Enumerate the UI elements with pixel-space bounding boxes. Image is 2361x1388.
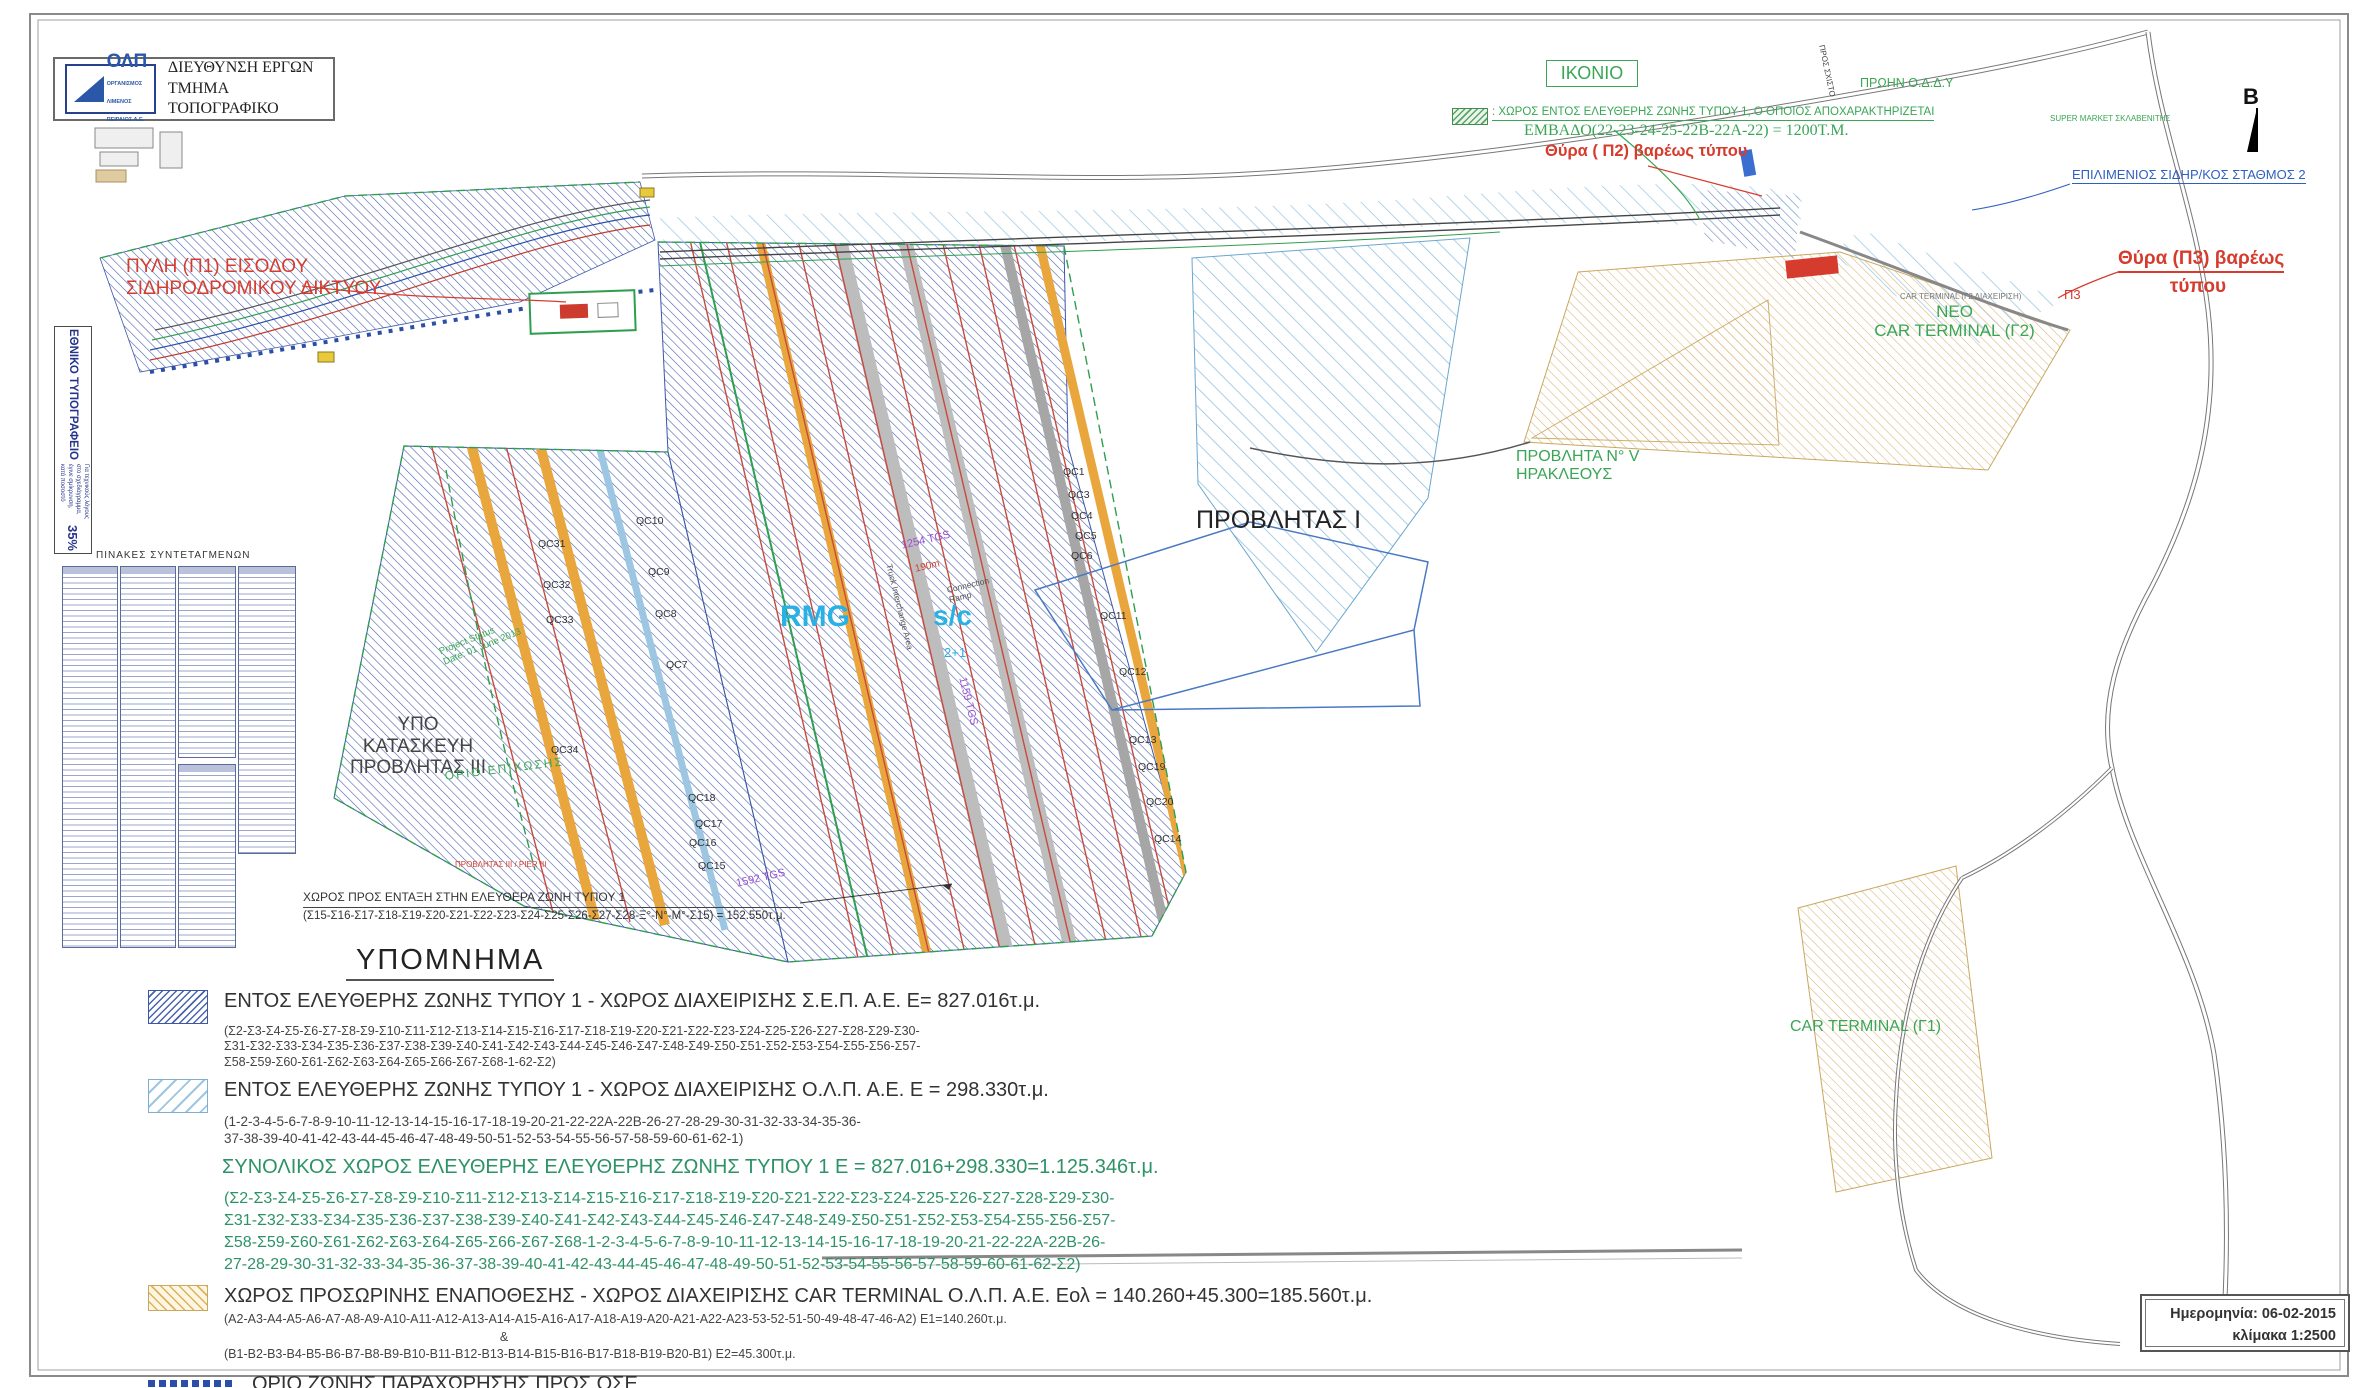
legend-item-detail: (1-2-3-4-5-6-7-8-9-10-11-12-13-14-15-16-… (224, 1113, 1448, 1130)
legend-item-detail: 37-38-39-40-41-42-43-44-45-46-47-48-49-5… (224, 1130, 1448, 1147)
label-provlita-v: ΠΡΟΒΛΗΤΑ Ν° V ΗΡΑΚΛΕΟΥΣ (1516, 448, 1639, 484)
label-p3: Π3 (2064, 288, 2081, 303)
legend-item-title: ΕΝΤΟΣ ΕΛΕΥΘΕΡΗΣ ΖΩΝΗΣ ΤΥΠΟΥ 1 - ΧΩΡΟΣ ΔΙ… (224, 1079, 1049, 1101)
coordinates-table-2 (120, 566, 176, 948)
legend-item-detail: Σ31-Σ32-Σ33-Σ34-Σ35-Σ36-Σ37-Σ38-Σ39-Σ40-… (224, 1039, 1448, 1054)
qc-label-QC17: QC17 (695, 818, 722, 830)
car-terminal-hatch (1524, 252, 2070, 1192)
qc-label-QC13: QC13 (1129, 734, 1156, 746)
label-provlitas-i: ΠΡΟΒΛΗΤΑΣ Ι (1196, 506, 1361, 535)
label-xoros-entaxi-line2: (Σ15-Σ16-Σ17-Σ18-Σ19-Σ20-Σ21-Σ22-Σ23-Σ24… (303, 910, 786, 923)
titleblock-header: ΟΛΠ ΟΡΓΑΝΙΣΜΟΣ ΛΙΜΕΝΟΣ ΠΕΙΡΑΙΩΣ Α.Ε. ΔΙΕ… (53, 57, 335, 121)
qc-label-QC18: QC18 (688, 792, 715, 804)
legend-item-car: ΧΩΡΟΣ ΠΡΟΣΩΡΙΝΗΣ ΕΝΑΠΟΘΕΣΗΣ - ΧΩΡΟΣ ΔΙΑΧ… (148, 1285, 1448, 1364)
legend-item-ose: ΟΡΙΟ ΖΩΝΗΣ ΠΑΡΑΧΩΡΗΣΗΣ ΠΡΟΣ ΟΣΕ (148, 1373, 1448, 1388)
coordinates-table-5 (238, 566, 296, 854)
qc-label-QC3: QC3 (1068, 489, 1090, 501)
legend-item-detail: (Σ2-Σ3-Σ4-Σ5-Σ6-Σ7-Σ8-Σ9-Σ10-Σ11-Σ12-Σ13… (224, 1024, 1448, 1039)
legend-item-title: ΟΡΙΟ ΖΩΝΗΣ ΠΑΡΑΧΩΡΗΣΗΣ ΠΡΟΣ ΟΣΕ (252, 1373, 638, 1388)
olp-logo-text: ΟΛΠ (107, 51, 148, 72)
stamp-note: Για τεχνικούς λόγους στο σχεδιάγραμμα, έ… (57, 464, 88, 521)
legend-item-detail: Σ58-Σ59-Σ60-Σ61-Σ62-Σ63-Σ64-Σ65-Σ66-Σ67-… (224, 1055, 1448, 1070)
qc-label-QC9: QC9 (648, 566, 670, 578)
label-free-zone-note: : ΧΩΡΟΣ ΕΝΤΟΣ ΕΛΕΥΘΕΡΗΣ ΖΩΝΗΣ ΤΥΠΟΥ 1, Ο… (1492, 106, 1934, 121)
stamp-title: ΕΘΝΙΚΟ ΤΥΠΟΓΡΑΦΕΙΟ (67, 329, 79, 460)
legend-item-detail: (Β1-Β2-Β3-Β4-Β5-Β6-Β7-Β8-Β9-Β10-Β11-Β12-… (224, 1346, 1448, 1364)
legend-item-olp: ΕΝΤΟΣ ΕΛΕΥΘΕΡΗΣ ΖΩΝΗΣ ΤΥΠΟΥ 1 - ΧΩΡΟΣ ΔΙ… (148, 1079, 1448, 1147)
label-neo-car-terminal-g2: NEO CAR TERMINAL (Γ2) (1862, 302, 2047, 341)
stamp-percent: 35% (66, 525, 81, 551)
national-printing-stamp: ΕΘΝΙΚΟ ΤΥΠΟΓΡΑΦΕΙΟ Για τεχνικούς λόγους … (54, 326, 92, 554)
qc-label-QC1: QC1 (1063, 466, 1085, 478)
label-car-terminal-g1: CAR TERMINAL (Γ1) (1790, 1018, 1941, 1036)
label-embado: ΕΜΒΑΔΟ(22-23-24-25-22Β-22Α-22) = 1200Τ.Μ… (1524, 122, 1848, 140)
legend: ΥΠΟΜΝΗΜΑ ΕΝΤΟΣ ΕΛΕΥΘΕΡΗΣ ΖΩΝΗΣ ΤΥΠΟΥ 1 -… (148, 944, 1448, 1388)
qc-label-QC6: QC6 (1071, 550, 1093, 562)
topographic-drawing-sheet: ΟΛΠ ΟΡΓΑΝΙΣΜΟΣ ΛΙΜΕΝΟΣ ΠΕΙΡΑΙΩΣ Α.Ε. ΔΙΕ… (0, 0, 2361, 1388)
label-thyra-p2: Θύρα ( Π2) βαρέως τύπου (1545, 142, 1747, 161)
qc-label-QC12: QC12 (1119, 666, 1146, 678)
label-2plus1: 2+1 (944, 646, 966, 661)
drawing-scale: κλίμακα 1:2500 (2146, 1326, 2336, 1348)
qc-label-QC33: QC33 (546, 614, 573, 626)
qc-label-QC34: QC34 (551, 744, 578, 756)
legend-item-detail: (Σ2-Σ3-Σ4-Σ5-Σ6-Σ7-Σ8-Σ9-Σ10-Σ11-Σ12-Σ13… (224, 1188, 1448, 1210)
legend-item-detail: 27-28-29-30-31-32-33-34-35-36-37-38-39-4… (224, 1254, 1448, 1276)
qc-label-QC7: QC7 (666, 659, 688, 671)
free-zone-note-swatch (1452, 108, 1488, 125)
coordinates-table-4 (178, 764, 236, 948)
label-ikonio: ΙΚΟΝΙΟ (1546, 60, 1638, 87)
legend-item-detail: Σ31-Σ32-Σ33-Σ34-Σ35-Σ36-Σ37-Σ38-Σ39-Σ40-… (224, 1210, 1448, 1232)
qc-label-QC19: QC19 (1138, 761, 1165, 773)
legend-item-detail: (Α2-Α3-Α4-Α5-Α6-Α7-Α8-Α9-Α10-Α11-Α12-Α13… (224, 1311, 1448, 1329)
qc-label-QC5: QC5 (1075, 530, 1097, 542)
qc-label-QC16: QC16 (689, 837, 716, 849)
label-proin-oddy: ΠΡΩΗΝ Ο.Δ.Δ.Υ (1860, 76, 1953, 90)
qc-label-QC31: QC31 (538, 538, 565, 550)
legend-item-title: ΧΩΡΟΣ ΠΡΟΣΩΡΙΝΗΣ ΕΝΑΠΟΘΕΣΗΣ - ΧΩΡΟΣ ΔΙΑΧ… (224, 1285, 1372, 1307)
qc-label-QC14: QC14 (1154, 833, 1181, 845)
label-north-b: B (2243, 84, 2259, 109)
qc-label-QC10: QC10 (636, 515, 663, 527)
qc-label-QC15: QC15 (698, 860, 725, 872)
north-arrow-icon (2247, 108, 2257, 152)
legend-swatch-sep (148, 990, 208, 1024)
qc-label-QC11: QC11 (1100, 610, 1127, 622)
legend-title: ΥΠΟΜΝΗΜΑ (346, 944, 554, 981)
legend-swatch-car (148, 1285, 208, 1311)
olp-logo-icon (74, 76, 104, 102)
coordinates-table-3 (178, 566, 236, 758)
label-pyli-p1: ΠΥΛΗ (Π1) ΕΙΣΟΔΟΥ ΣΙΔΗΡΟΔΡΟΜΙΚΟΥ ΔΙΚΤΥΟΥ (126, 256, 381, 299)
label-xoros-entaxi-line1: ΧΩΡΟΣ ΠΡΟΣ ΕΝΤΑΞΗ ΣΤΗΝ ΕΛΕΥΘΕΡΑ ΖΩΝΗ ΤΥΠ… (303, 891, 803, 908)
legend-item-sep: ΕΝΤΟΣ ΕΛΕΥΘΕΡΗΣ ΖΩΝΗΣ ΤΥΠΟΥ 1 - ΧΩΡΟΣ ΔΙ… (148, 990, 1448, 1070)
department-title: ΔΙΕΥΘΥΝΣΗ ΕΡΓΩΝ ΤΜΗΜΑ ΤΟΠΟΓΡΑΦΙΚΟ (168, 58, 333, 120)
label-rmg: RMG (780, 600, 850, 634)
label-epilimenios: ΕΠΙΛΙΜΕΝΙΟΣ ΣΙΔΗΡ/ΚΟΣ ΣΤΑΘΜΟΣ 2 (2072, 168, 2306, 184)
legend-item-total: ΣΥΝΟΛΙΚΟΣ ΧΩΡΟΣ ΕΛΕΥΘΕΡΗΣ ΕΛΕΥΘΕΡΗΣ ΖΩΝΗ… (148, 1156, 1448, 1276)
label-thyra-p3-line1: Θύρα (Π3) βαρέως (2118, 248, 2284, 273)
qc-label-QC4: QC4 (1071, 510, 1093, 522)
olp-logo-subtext: ΟΡΓΑΝΙΣΜΟΣ ΛΙΜΕΝΟΣ ΠΕΙΡΑΙΩΣ Α.Ε. (107, 81, 145, 123)
legend-item-detail: Σ58-Σ59-Σ60-Σ61-Σ62-Σ63-Σ64-Σ65-Σ66-Σ67-… (224, 1232, 1448, 1254)
legend-item-title: ΣΥΝΟΛΙΚΟΣ ΧΩΡΟΣ ΕΛΕΥΘΕΡΗΣ ΕΛΕΥΘΕΡΗΣ ΖΩΝΗ… (222, 1156, 1159, 1178)
qc-label-QC32: QC32 (543, 579, 570, 591)
legend-swatch-olp (148, 1079, 208, 1113)
label-sc: s/c (933, 600, 972, 632)
qc-label-QC20: QC20 (1146, 796, 1173, 808)
coordinates-table-1 (62, 566, 118, 948)
coordinate-tables-title: ΠΙΝΑΚΕΣ ΣΥΝΤΕΤΑΓΜΕΝΩΝ (96, 550, 251, 561)
olp-logo: ΟΛΠ ΟΡΓΑΝΙΣΜΟΣ ΛΙΜΕΝΟΣ ΠΕΙΡΑΙΩΣ Α.Ε. (65, 64, 156, 114)
legend-item-title: ΕΝΤΟΣ ΕΛΕΥΘΕΡΗΣ ΖΩΝΗΣ ΤΥΠΟΥ 1 - ΧΩΡΟΣ ΔΙ… (224, 990, 1040, 1012)
qc-label-QC8: QC8 (655, 608, 677, 620)
label-thyra-p3-line2: τύπου (2118, 276, 2278, 298)
label-super-market: SUPER MARKET ΣΚΛΑΒΕΝΙΤΗΣ (2050, 114, 2170, 123)
legend-swatch-spacer (148, 1156, 206, 1188)
label-provlitas-iii-pier: ΠΡΟΒΛΗΤΑΣ ΙΙΙ / PIER ΙΙΙ (455, 860, 547, 869)
drawing-date: Ημερομηνία: 06-02-2015 (2146, 1304, 2336, 1326)
legend-swatch-ose (148, 1380, 236, 1387)
label-car-terminal-g2-note: CAR TERMINAL (Γ2 ΔΙΑΧΕΙΡΙΣΗ) (1900, 292, 2021, 301)
legend-item-detail: & (224, 1329, 784, 1347)
date-scale-block: Ημερομηνία: 06-02-2015 κλίμακα 1:2500 (2140, 1294, 2350, 1352)
